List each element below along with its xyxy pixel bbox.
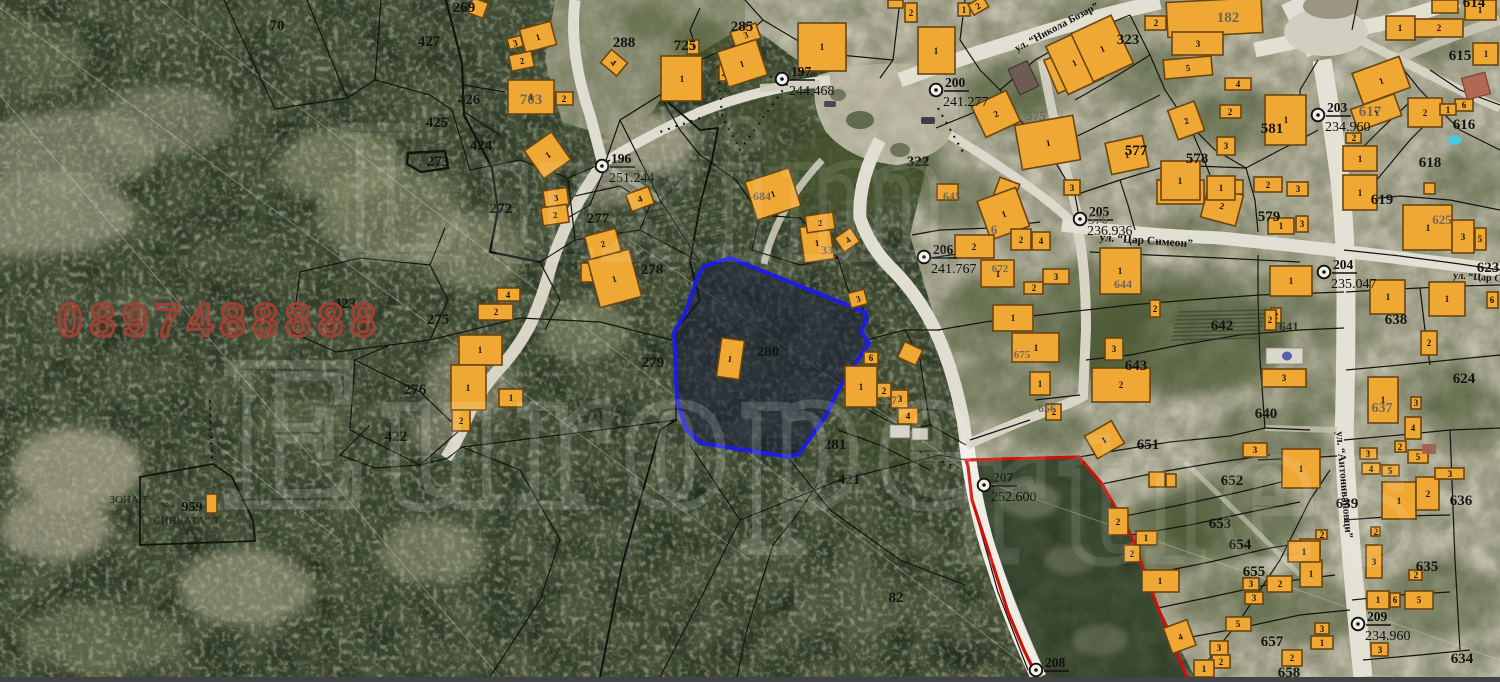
svg-text:1: 1: [1445, 294, 1450, 304]
svg-text:269: 269: [453, 0, 476, 16]
svg-text:2: 2: [1019, 235, 1024, 245]
svg-text:2: 2: [1266, 180, 1271, 190]
svg-text:634: 634: [1451, 651, 1474, 667]
svg-text:725: 725: [674, 38, 697, 54]
svg-text:6: 6: [1462, 100, 1467, 110]
svg-text:2: 2: [1427, 338, 1432, 348]
svg-text:70: 70: [270, 18, 285, 34]
svg-text:3: 3: [1320, 624, 1325, 634]
svg-text:1: 1: [1011, 313, 1016, 323]
svg-text:2: 2: [1437, 23, 1442, 33]
svg-text:3: 3: [1196, 39, 1201, 49]
svg-text:2: 2: [1154, 18, 1159, 28]
svg-text:208: 208: [1045, 655, 1066, 670]
svg-text:576: 576: [1088, 212, 1108, 227]
svg-text:1: 1: [1320, 638, 1325, 648]
svg-text:234.960: 234.960: [1325, 120, 1371, 135]
svg-text:3: 3: [1296, 184, 1301, 194]
svg-text:636: 636: [1450, 493, 1473, 509]
svg-text:2: 2: [1228, 107, 1233, 117]
svg-text:642: 642: [1211, 318, 1234, 334]
svg-text:614: 614: [1463, 0, 1486, 11]
svg-text:2: 2: [1423, 108, 1428, 118]
svg-text:204: 204: [1333, 257, 1354, 272]
svg-text:5: 5: [1478, 234, 1483, 244]
svg-text:2: 2: [1219, 657, 1224, 667]
svg-text:5: 5: [1236, 619, 1241, 629]
svg-text:3: 3: [1217, 643, 1222, 653]
svg-text:234.960: 234.960: [1365, 629, 1411, 644]
svg-text:323: 323: [1117, 32, 1140, 48]
svg-text:2: 2: [972, 242, 977, 252]
svg-text:82: 82: [889, 590, 904, 606]
svg-text:203: 203: [1327, 100, 1348, 115]
svg-text:1: 1: [1118, 266, 1123, 276]
svg-text:675: 675: [1014, 349, 1031, 361]
svg-text:427: 427: [418, 34, 441, 50]
svg-text:1: 1: [1034, 343, 1039, 353]
svg-text:197: 197: [791, 64, 812, 79]
svg-text:235.047: 235.047: [1331, 277, 1377, 292]
svg-text:578: 578: [1186, 151, 1209, 167]
svg-text:во/1: во/1: [161, 500, 175, 509]
svg-text:615: 615: [1449, 48, 1472, 64]
svg-text:2: 2: [1268, 315, 1273, 325]
svg-text:658: 658: [1278, 665, 1301, 677]
svg-text:644: 644: [1114, 277, 1132, 291]
svg-text:0897488888: 0897488888: [57, 294, 383, 346]
svg-text:657: 657: [1261, 634, 1284, 650]
svg-text:575: 575: [1026, 108, 1046, 123]
svg-text:616: 616: [1453, 117, 1476, 133]
svg-text:1: 1: [1284, 115, 1289, 125]
svg-text:2: 2: [909, 8, 914, 18]
svg-text:1: 1: [1219, 183, 1224, 193]
svg-text:3: 3: [1224, 141, 1229, 151]
svg-text:288: 288: [613, 35, 636, 51]
svg-text:rties: rties: [950, 368, 1426, 607]
svg-text:6: 6: [1490, 295, 1495, 305]
svg-text:3: 3: [1112, 344, 1117, 354]
svg-text:3: 3: [1070, 183, 1075, 193]
svg-text:1: 1: [1358, 154, 1363, 164]
svg-text:625: 625: [1432, 212, 1452, 227]
svg-text:1: 1: [820, 42, 825, 52]
svg-text:4: 4: [1236, 79, 1241, 89]
svg-text:285: 285: [731, 19, 754, 35]
svg-text:Luxim: Luxim: [340, 81, 957, 302]
svg-text:Europe: Europe: [225, 313, 986, 552]
svg-text:1: 1: [934, 46, 939, 56]
svg-text:2: 2: [1032, 283, 1037, 293]
svg-text:617: 617: [1359, 104, 1382, 120]
svg-text:182: 182: [1217, 10, 1240, 26]
svg-text:209: 209: [1367, 609, 1388, 624]
svg-text:ЗОНА Т: ЗОНА Т: [110, 494, 149, 506]
svg-text:2: 2: [1290, 653, 1295, 663]
svg-text:1: 1: [1426, 223, 1431, 233]
svg-text:3: 3: [1300, 219, 1305, 229]
svg-text:1: 1: [1289, 276, 1294, 286]
svg-text:3: 3: [1461, 232, 1466, 242]
svg-text:624: 624: [1453, 371, 1476, 387]
svg-text:959: 959: [182, 500, 203, 515]
svg-text:2: 2: [1426, 489, 1431, 499]
svg-text:“СИНКАТА” Т: “СИНКАТА” Т: [149, 515, 220, 527]
svg-text:1: 1: [1484, 49, 1489, 59]
svg-text:1: 1: [1446, 105, 1451, 115]
svg-text:4: 4: [1039, 236, 1044, 246]
svg-text:1: 1: [1358, 188, 1363, 198]
svg-text:1: 1: [1178, 176, 1183, 186]
svg-text:638: 638: [1385, 312, 1408, 328]
svg-text:618: 618: [1419, 155, 1442, 171]
svg-text:1: 1: [1398, 23, 1403, 33]
svg-text:3: 3: [1378, 645, 1383, 655]
svg-text:1: 1: [1386, 292, 1391, 302]
svg-text:2: 2: [1153, 304, 1158, 314]
svg-text:641: 641: [1279, 319, 1299, 334]
svg-text:6: 6: [991, 222, 998, 237]
svg-text:672: 672: [992, 263, 1009, 275]
svg-text:619: 619: [1371, 192, 1394, 208]
svg-text:577: 577: [1125, 143, 1148, 159]
svg-text:1: 1: [962, 5, 967, 15]
svg-text:581: 581: [1261, 121, 1284, 137]
svg-text:3: 3: [1054, 272, 1059, 282]
svg-text:3: 3: [1448, 469, 1453, 479]
svg-text:1: 1: [1202, 664, 1207, 674]
svg-text:579: 579: [1258, 209, 1281, 225]
